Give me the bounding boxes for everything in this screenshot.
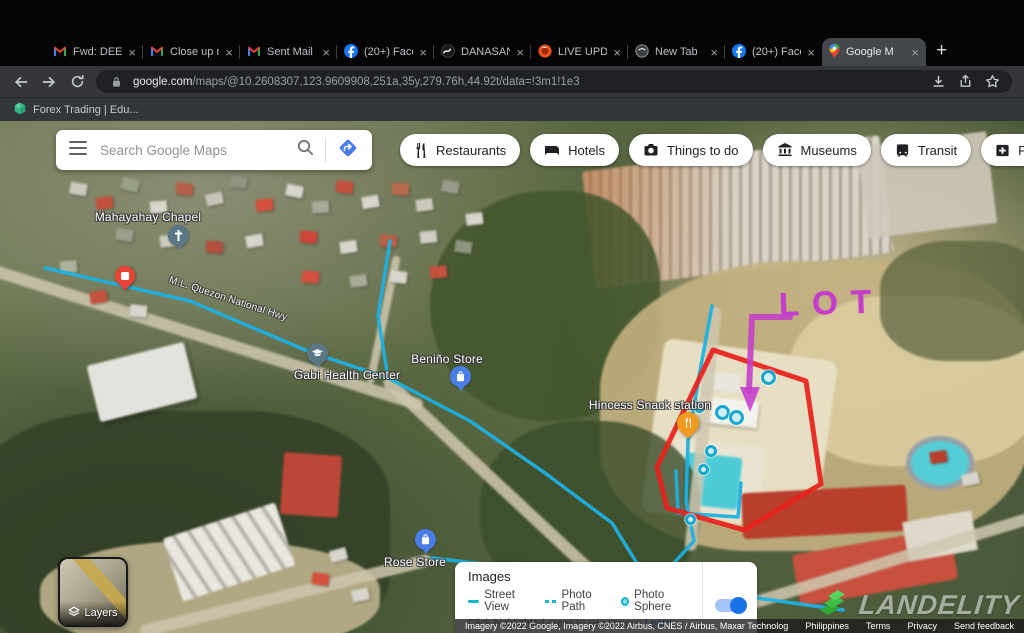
map-overlay-graphics — [0, 121, 1024, 633]
watermark-text: LANDELITY — [857, 590, 1021, 621]
maps-search-card — [56, 130, 372, 170]
forward-icon[interactable] — [36, 69, 62, 95]
legend-photo-path: Photo Path — [545, 589, 607, 613]
tab-close-icon[interactable]: × — [710, 46, 718, 59]
tab-close-icon[interactable]: × — [128, 46, 136, 59]
photo-path-dash-swatch — [545, 600, 556, 603]
tab-live-update[interactable]: LIVE UPDA × — [531, 38, 628, 66]
tab-label: Google M — [846, 46, 905, 58]
tab-label: DANASAN — [461, 46, 510, 58]
facebook-icon — [732, 44, 746, 61]
tab-facebook-1[interactable]: (20+) Face × — [337, 38, 434, 66]
gmail-icon — [150, 45, 164, 60]
legend-items: Street View Photo Path Photo Sphere — [468, 589, 698, 613]
bookmark-cube-icon — [14, 102, 26, 118]
lock-icon — [106, 72, 126, 92]
tab-close-icon[interactable]: × — [322, 46, 330, 59]
chip-label: Pharmacies — [1018, 143, 1024, 158]
chip-label: Things to do — [667, 143, 739, 158]
tab-facebook-2[interactable]: (20+) Face × — [725, 38, 822, 66]
tab-label: New Tab — [655, 46, 704, 58]
tab-label: (20+) Face — [752, 46, 801, 58]
tab-label: (20+) Face — [364, 46, 413, 58]
tab-label: LIVE UPDA — [558, 46, 607, 58]
tab-close-icon[interactable]: × — [613, 46, 621, 59]
tab-close-icon[interactable]: × — [807, 46, 815, 59]
tab-gmail-sent-mail[interactable]: Sent Mail - × — [240, 38, 337, 66]
search-input[interactable] — [98, 142, 286, 159]
chip-transit[interactable]: Transit — [881, 134, 971, 166]
layers-label: Layers — [84, 607, 117, 619]
divider — [325, 138, 326, 162]
layers-icon — [68, 606, 80, 621]
attribution-text: Imagery ©2022 Google, Imagery ©2022 Airb… — [465, 621, 788, 631]
chip-hotels[interactable]: Hotels — [530, 134, 619, 166]
browser-tab-strip: Fwd: DEED × Close up m × Sent Mail - × (… — [0, 0, 1024, 66]
street-view-line[interactable] — [672, 306, 712, 565]
layers-caption: Layers — [60, 601, 126, 625]
legend-title: Images — [468, 569, 698, 584]
photo-sphere-dot[interactable] — [685, 514, 696, 525]
back-icon[interactable] — [8, 69, 34, 95]
watermark: LANDELITY — [816, 588, 1020, 623]
footer-link-terms[interactable]: Terms — [866, 621, 891, 631]
photo-sphere-dot[interactable] — [715, 405, 730, 420]
bookmarks-bar: Forex Trading | Edu... — [0, 97, 1024, 121]
url-domain: google.com — [133, 76, 192, 88]
gmail-icon — [247, 45, 261, 60]
reload-icon[interactable] — [64, 69, 90, 95]
map-viewport[interactable]: LOT Mahayahay Chapel Gabi Health Center … — [0, 121, 1024, 633]
tab-label: Sent Mail - — [267, 46, 316, 58]
tab-close-icon[interactable]: × — [419, 46, 427, 59]
browser-toolbar: google.com/maps/@10.2608307,123.9609908,… — [0, 66, 1024, 97]
photo-sphere-dot[interactable] — [729, 410, 744, 425]
layers-button[interactable]: Layers — [58, 557, 128, 627]
chip-pharmacies[interactable]: Pharmacies — [981, 134, 1024, 166]
globe-icon — [441, 44, 455, 61]
watermark-logo-icon — [816, 588, 854, 623]
map-attribution-bar: Imagery ©2022 Google, Imagery ©2022 Airb… — [455, 619, 1024, 633]
poi-label-benino-store[interactable]: Beniño Store — [411, 352, 483, 366]
google-maps-pin-icon — [829, 43, 840, 61]
tab-google-maps-active[interactable]: Google M × — [822, 38, 926, 66]
chip-things-to-do[interactable]: Things to do — [629, 134, 753, 166]
legend-photo-sphere: Photo Sphere — [621, 589, 690, 613]
legend-street-view: Street View — [468, 589, 531, 613]
lot-annotation-arrowhead — [740, 387, 760, 412]
news-icon — [538, 44, 552, 61]
footer-link-philippines[interactable]: Philippines — [805, 621, 849, 631]
chip-label: Hotels — [568, 143, 605, 158]
footer-link-send-feedback[interactable]: Send feedback — [954, 621, 1014, 631]
chip-label: Transit — [918, 143, 957, 158]
search-icon[interactable] — [297, 139, 314, 161]
tab-gmail-close-up[interactable]: Close up m × — [143, 38, 240, 66]
tab-danasan[interactable]: DANASAN × — [434, 38, 531, 66]
facebook-icon — [344, 44, 358, 61]
store-pin-benino[interactable] — [450, 366, 471, 387]
store-pin-rose[interactable] — [415, 529, 436, 550]
tab-close-icon[interactable]: × — [516, 46, 524, 59]
chip-restaurants[interactable]: Restaurants — [400, 134, 520, 166]
poi-label-gabi-health-center[interactable]: Gabi Health Center — [294, 368, 400, 382]
new-tab-button[interactable]: + — [936, 41, 947, 60]
images-toggle-switch[interactable] — [715, 599, 745, 612]
tab-gmail-fwd-deed[interactable]: Fwd: DEED × — [46, 38, 143, 66]
tab-close-icon[interactable]: × — [911, 46, 919, 59]
lot-annotation-text: LOT — [778, 282, 884, 324]
tab-new-tab[interactable]: New Tab × — [628, 38, 725, 66]
menu-hamburger-icon[interactable] — [69, 141, 87, 160]
poi-label-rose-store[interactable]: Rose Store — [384, 555, 446, 569]
url-bar[interactable]: google.com/maps/@10.2608307,123.9609908,… — [96, 70, 1012, 93]
tab-label: Fwd: DEED — [73, 46, 122, 58]
health-center-pin[interactable] — [307, 343, 328, 364]
url-path: /maps/@10.2608307,123.9609908,251a,35y,2… — [192, 76, 579, 88]
chip-label: Museums — [801, 143, 857, 158]
footer-links: Philippines Terms Privacy Send feedback — [805, 621, 1014, 631]
street-view-line-swatch — [468, 600, 479, 603]
poi-label-mahayahay-chapel[interactable]: Mahayahay Chapel — [95, 210, 202, 224]
photo-sphere-dot-swatch — [621, 597, 629, 606]
download-icon[interactable] — [928, 72, 948, 92]
share-icon[interactable] — [955, 72, 975, 92]
photo-sphere-dot[interactable] — [761, 370, 776, 385]
bookmark-star-icon[interactable] — [982, 72, 1002, 92]
chapel-pin[interactable] — [168, 225, 189, 246]
chip-museums[interactable]: Museums — [763, 134, 871, 166]
tab-close-icon[interactable]: × — [225, 46, 233, 59]
category-chips-row: Restaurants Hotels Things to do Museums … — [400, 134, 1024, 166]
street-view-line[interactable] — [378, 241, 390, 378]
photo-sphere-dot[interactable] — [698, 464, 709, 475]
photo-sphere-dot[interactable] — [705, 445, 717, 457]
url-text: google.com/maps/@10.2608307,123.9609908,… — [133, 76, 921, 88]
tab-label: Close up m — [170, 46, 219, 58]
chip-label: Restaurants — [436, 143, 506, 158]
gmail-icon — [53, 45, 67, 60]
chrome-globe-icon — [635, 44, 649, 61]
footer-link-privacy[interactable]: Privacy — [907, 621, 937, 631]
bookmark-label[interactable]: Forex Trading | Edu... — [33, 104, 139, 116]
poi-label-hincess-snack-station[interactable]: Hincess Snack station — [589, 398, 711, 412]
directions-icon[interactable] — [337, 137, 359, 164]
